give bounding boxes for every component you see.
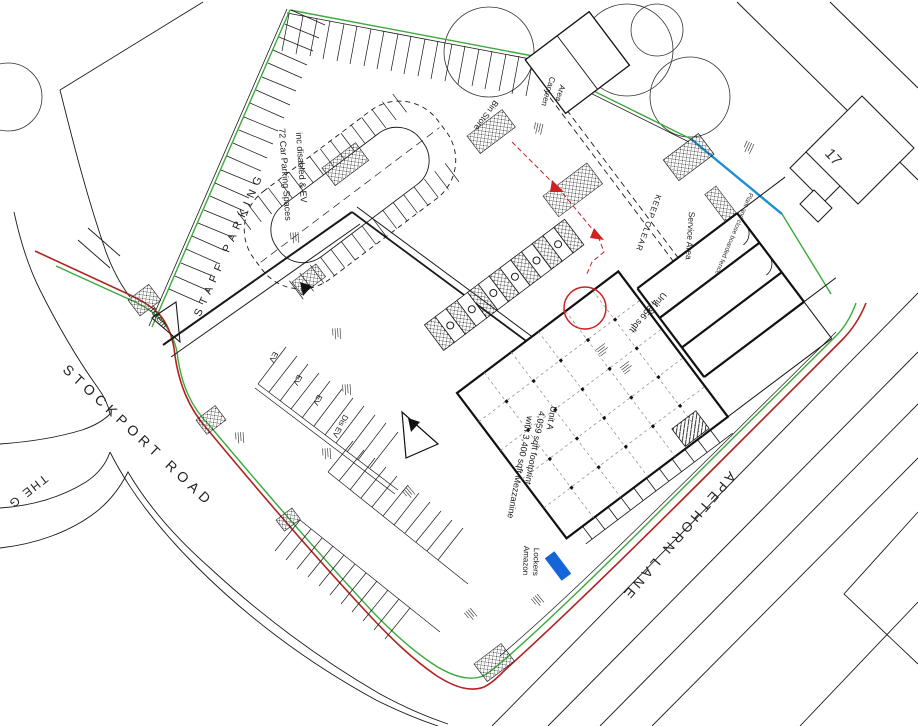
site-plan-linework <box>0 0 918 726</box>
neighbour-house-17 <box>737 2 918 222</box>
keep-clear-crossing <box>663 133 714 180</box>
amazon-lockers-label-line1: Amazon <box>521 546 530 576</box>
door-swings <box>735 225 777 275</box>
road-linework <box>0 2 918 726</box>
building-terrace <box>322 0 890 551</box>
site-plan-sheet: STOCKPORT ROAD APETHORN LANE THE G STAFF… <box>0 0 918 726</box>
amazon-locker-marker <box>545 551 571 581</box>
amazon-lockers-label-line2: Lockers <box>531 548 540 576</box>
